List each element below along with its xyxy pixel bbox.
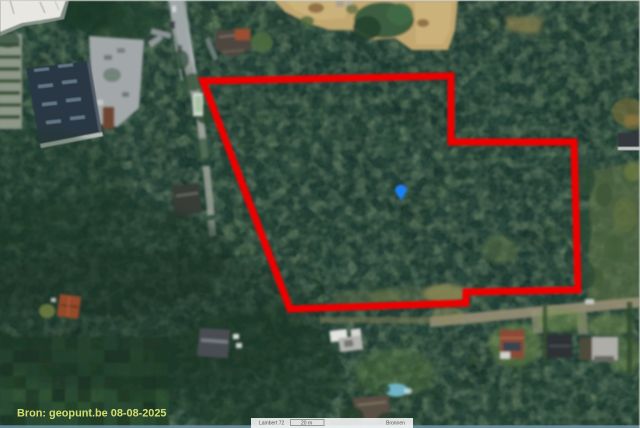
svg-text:20 m: 20 m	[301, 421, 312, 427]
svg-text:Lambert 72: Lambert 72	[259, 421, 285, 427]
svg-text:Bronnen: Bronnen	[386, 421, 405, 427]
svg-text:Bron: geopunt.be 08-08-2025: Bron: geopunt.be 08-08-2025	[17, 408, 166, 420]
